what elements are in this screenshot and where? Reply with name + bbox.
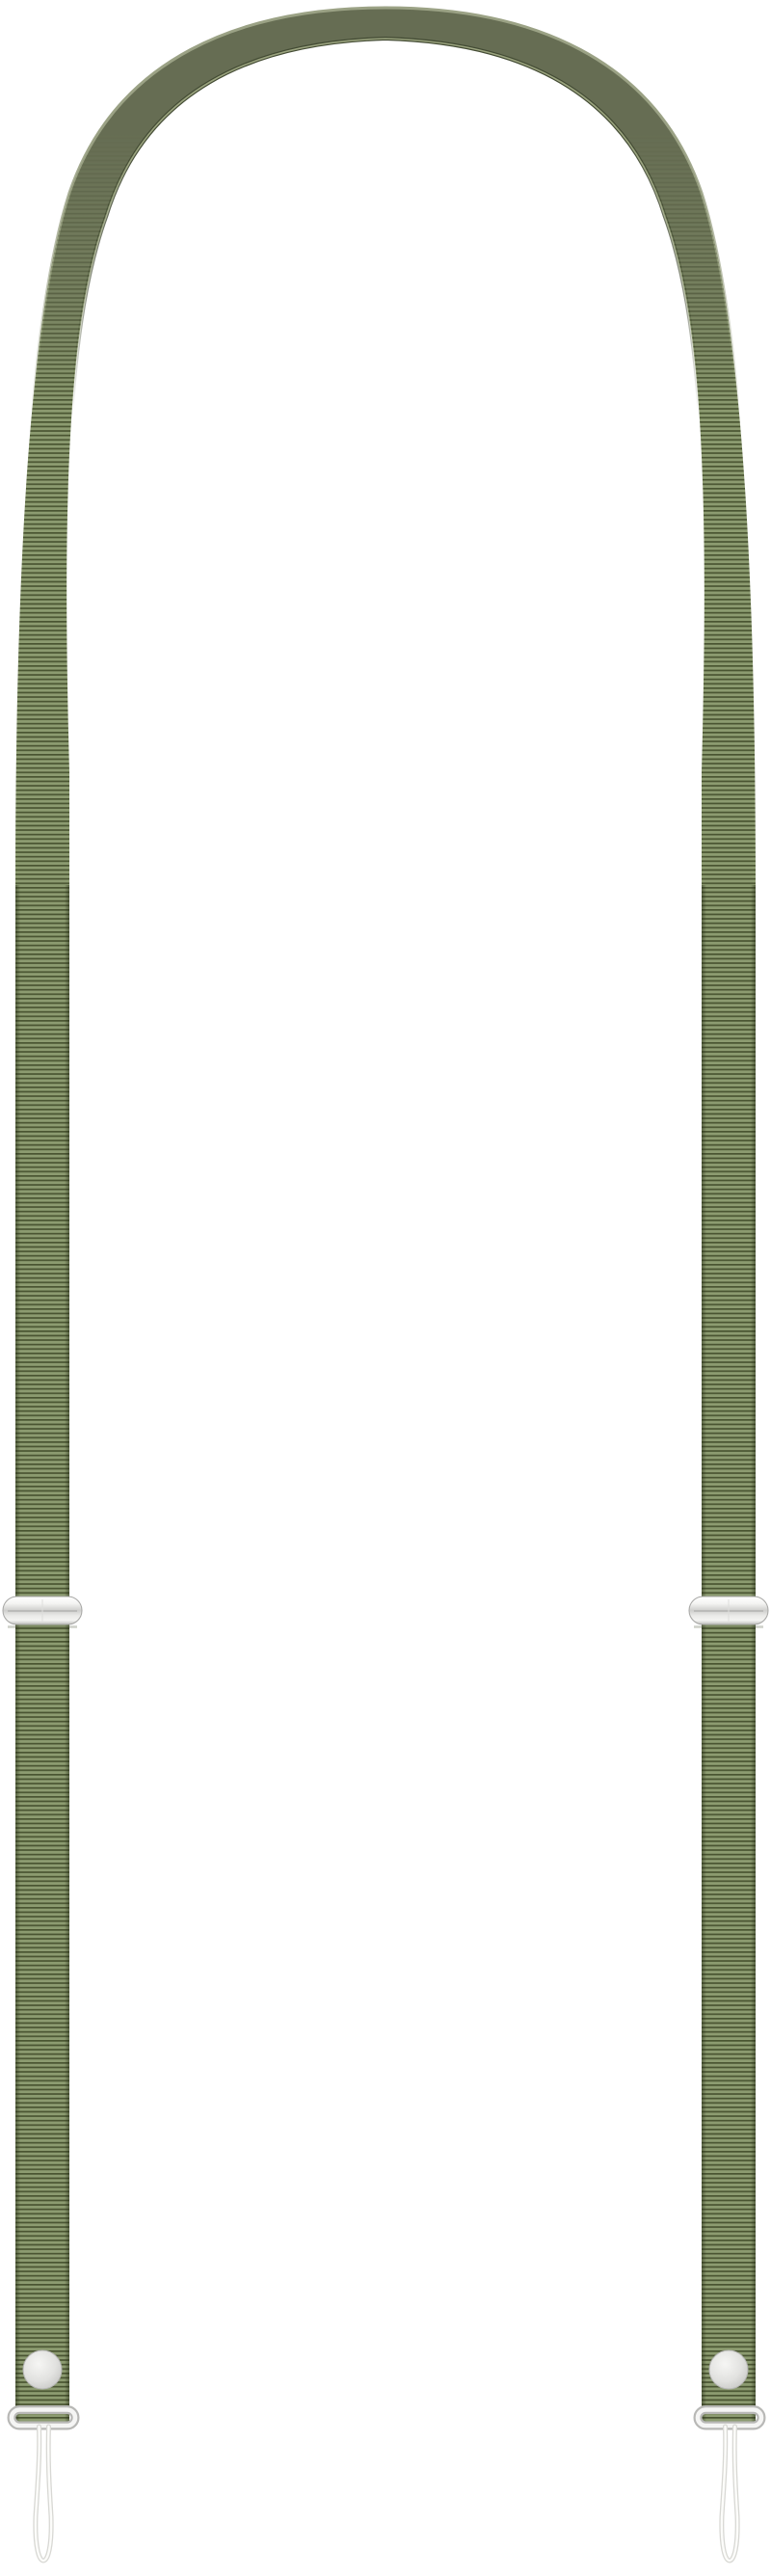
snap-button-right	[709, 2350, 748, 2389]
cord-loop-right	[722, 2427, 737, 2561]
slide-adjuster-left	[3, 1597, 82, 1627]
slide-adjuster-right	[689, 1597, 768, 1627]
strap-arch-smooth-top	[15, 8, 756, 887]
strap-arch-inner-highlight	[66, 39, 705, 771]
strap-right	[702, 885, 756, 2426]
snap-button-left	[23, 2350, 62, 2389]
product-image	[0, 0, 771, 2576]
strap-edge-shading	[15, 885, 69, 2426]
strap-left	[15, 885, 69, 2426]
cord-loop-left	[36, 2427, 51, 2561]
lanyard-graphic	[0, 0, 771, 2576]
strap-arch-inner-shadow-line	[66, 39, 705, 771]
strap-arch-top-body	[15, 8, 756, 887]
